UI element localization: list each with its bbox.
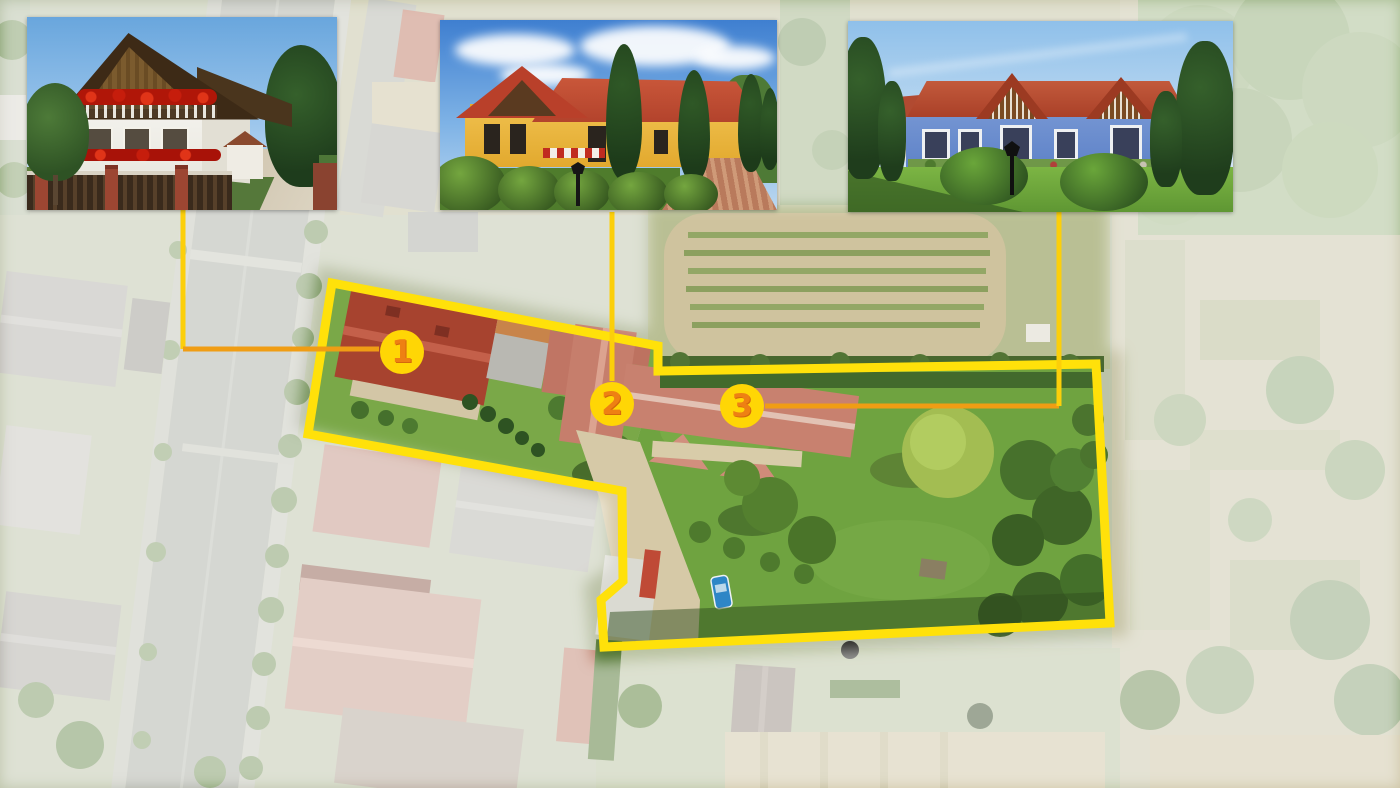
marker-1: 1 [380, 330, 424, 374]
window-flower-boxes [79, 149, 221, 161]
balcony-flowers [77, 89, 217, 105]
striped-fence [543, 148, 605, 158]
cloud [695, 46, 775, 70]
window [510, 124, 526, 154]
window [484, 124, 500, 154]
inset-photo-house-3 [848, 21, 1233, 212]
garden-lamp-post [576, 170, 580, 206]
aerial-property-composite: 1 2 3 [0, 0, 1400, 788]
annex-wall [227, 145, 263, 179]
round-bush [608, 172, 668, 210]
window [123, 127, 151, 151]
window [85, 127, 113, 151]
brick-wall [313, 163, 337, 210]
round-bush [664, 174, 718, 210]
balcony-railing [77, 105, 217, 118]
conifer-tree [1176, 41, 1233, 195]
round-bush [554, 170, 610, 210]
marker-3: 3 [720, 384, 764, 428]
garden-tree [27, 83, 89, 181]
conifer-tree [878, 81, 906, 181]
brick-pillar [175, 165, 188, 210]
inset-photo-house-2 [440, 20, 777, 210]
window [654, 130, 668, 154]
round-bush [1060, 153, 1148, 211]
conifer-tree [1150, 91, 1182, 187]
marker-2: 2 [590, 382, 634, 426]
cypress-tree [760, 88, 777, 170]
window [1054, 129, 1078, 161]
inset-photo-house-1 [27, 17, 337, 210]
window [161, 127, 189, 151]
cloud [455, 34, 575, 66]
tree-trunk [53, 175, 58, 205]
garden-lamp-post [1010, 153, 1014, 195]
marker-1-number: 1 [391, 337, 413, 368]
window [922, 129, 950, 161]
marker-2-number: 2 [601, 389, 623, 420]
marker-3-number: 3 [731, 391, 753, 422]
brick-pillar [105, 165, 118, 210]
round-bush [498, 166, 560, 210]
